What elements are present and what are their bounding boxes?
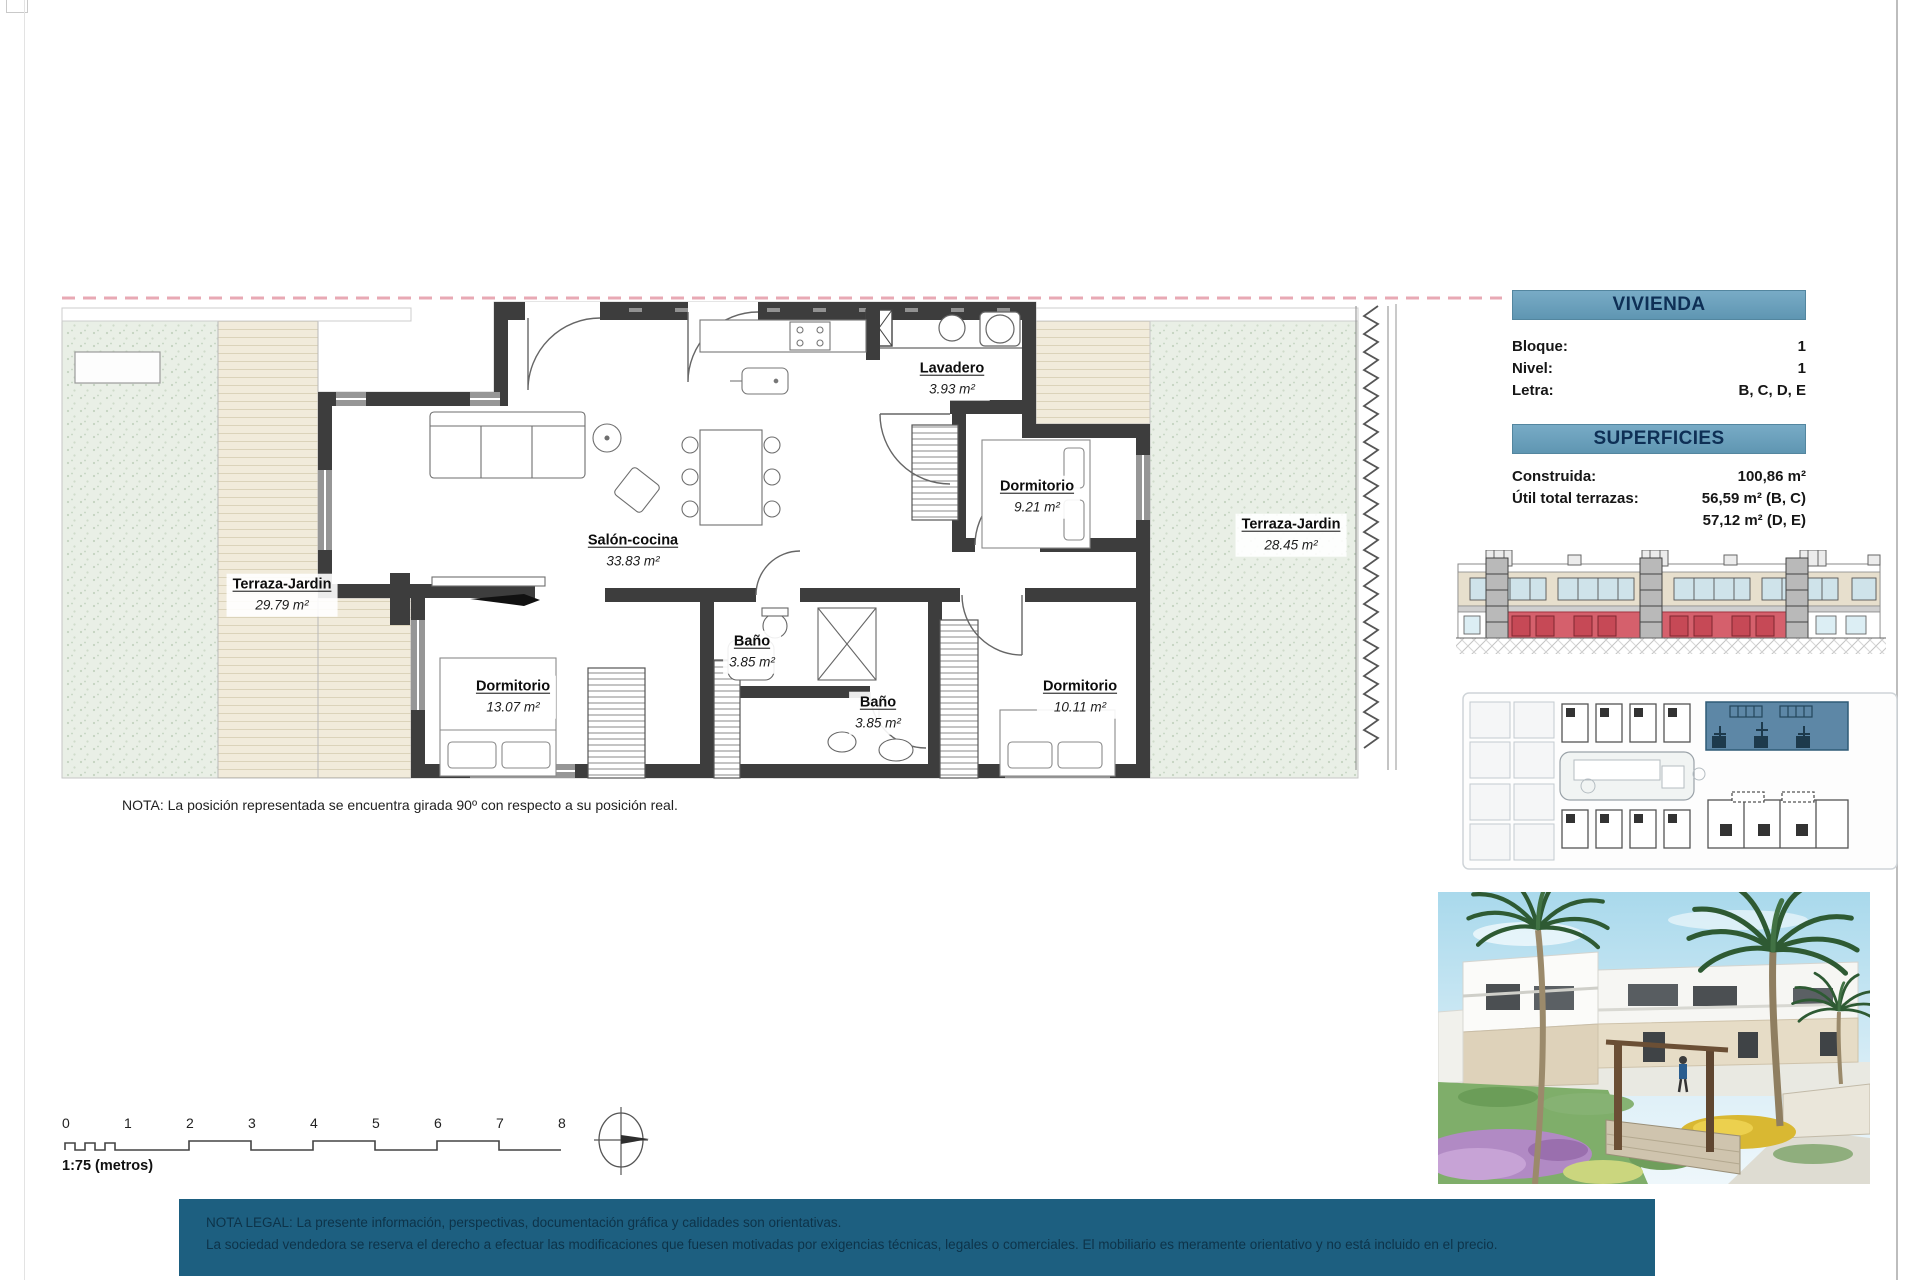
legal-line-1: NOTA LEGAL: La presente información, per… [206, 1212, 1635, 1234]
vivienda-row-nivel: Nivel: 1 [1512, 360, 1806, 377]
building-elevation [1456, 550, 1886, 665]
room-label-lavadero: Lavadero3.93 m² [914, 358, 990, 401]
legal-line-2: La sociedad vendedora se reserva el dere… [206, 1234, 1635, 1256]
rotation-note: NOTA: La posición representada se encuen… [122, 797, 678, 813]
superficies-header: SUPERFICIES [1512, 424, 1806, 454]
room-label-bano1: Baño3.85 m² [723, 631, 781, 674]
page-border-right [1896, 0, 1898, 1280]
compass-icon [585, 1106, 657, 1178]
left-garden-strip [62, 308, 218, 778]
render-image [1438, 892, 1870, 1184]
room-label-dormitorio-921: Dormitorio9.21 m² [994, 476, 1080, 519]
svg-text:0: 0 [62, 1115, 70, 1131]
svg-text:2: 2 [186, 1115, 194, 1131]
central-courtyard [1560, 752, 1694, 800]
svg-text:1:75 (metros): 1:75 (metros) [62, 1158, 153, 1174]
bedroom3-furniture [1000, 710, 1115, 776]
room-label-salon: Salón-cocina33.83 m² [582, 530, 684, 573]
highlighted-block [1706, 702, 1848, 750]
room-label-bano2: Baño3.85 m² [849, 692, 907, 735]
svg-text:7: 7 [496, 1115, 504, 1131]
superficies-row-terrazas2: 57,12 m² (D, E) [1512, 512, 1806, 529]
room-label-dormitorio-1307: Dormitorio13.07 m² [470, 676, 556, 719]
scale-bar: 0 1 2 3 4 5 6 7 8 1:75 (metros) [58, 1112, 578, 1176]
room-label-terraza-right: Terraza-Jardin28.45 m² [1236, 514, 1347, 557]
block-bottom-right [1708, 792, 1848, 848]
vivienda-row-letra: Letra: B, C, D, E [1512, 382, 1806, 399]
plan-sheet: Terraza-Jardin29.79 m² Salón-cocina33.83… [0, 0, 1920, 1280]
svg-text:1: 1 [124, 1115, 132, 1131]
svg-text:3: 3 [248, 1115, 256, 1131]
room-label-dormitorio-1011: Dormitorio10.11 m² [1037, 676, 1123, 719]
room-label-terraza-left: Terraza-Jardin29.79 m² [227, 574, 338, 617]
superficies-row-construida: Construida: 100,86 m² [1512, 468, 1806, 485]
legal-note-bar: NOTA LEGAL: La presente información, per… [179, 1199, 1655, 1276]
site-plan [1462, 692, 1898, 870]
superficies-row-terrazas: Útil total terrazas: 56,59 m² (B, C) [1512, 490, 1806, 507]
svg-text:6: 6 [434, 1115, 442, 1131]
svg-text:4: 4 [310, 1115, 318, 1131]
vivienda-header: VIVIENDA [1512, 290, 1806, 320]
vivienda-row-bloque: Bloque: 1 [1512, 338, 1806, 355]
svg-text:8: 8 [558, 1115, 566, 1131]
svg-text:5: 5 [372, 1115, 380, 1131]
hedge [1356, 304, 1396, 770]
